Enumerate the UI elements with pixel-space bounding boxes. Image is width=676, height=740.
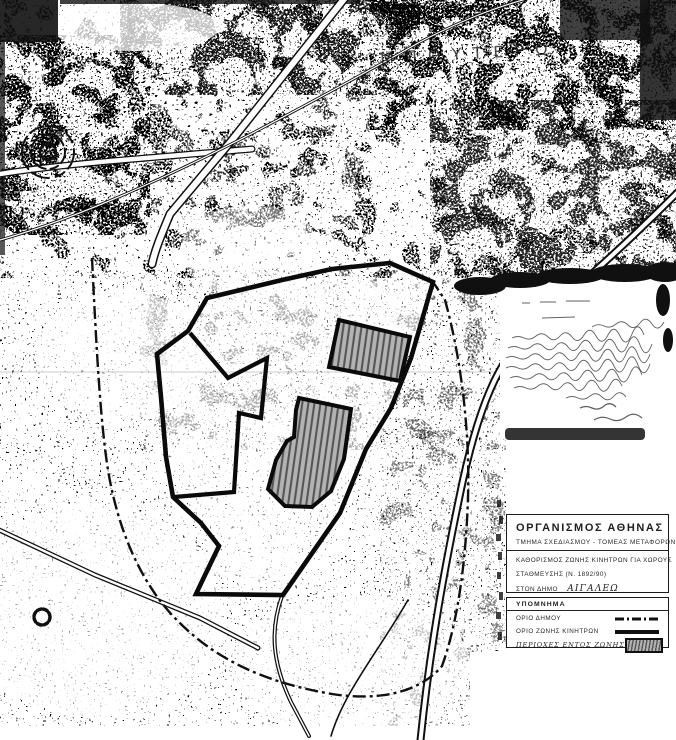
legend-label: ΟΡΙΟ ΖΩΝΗΣ ΚΙΝΗΤΡΩΝ (516, 628, 599, 635)
subject-line-1: ΚΑΘΟΡΙΣΜΟΣ ΖΩΝΗΣ ΚΙΝΗΤΡΩΝ ΓΙΑ ΧΩΡΟΥΣ (516, 557, 659, 564)
legend: ΥΠΟΜΝΗΜΑ ΟΡΙΟ ΔΗΜΟΥ ΟΡΙΟ ΖΩΝΗΣ ΚΙΝΗΤΡΩΝ … (506, 597, 669, 648)
scanned-photomap-page: Μ Π Ο Υ Τ Ε Ρ Ω ΟΡΓΑΝΙΣΜΟΣ ΑΘΗΝΑΣ ΤΜΗΜΑ … (0, 0, 676, 740)
org-section: ΟΡΓΑΝΙΣΜΟΣ ΑΘΗΝΑΣ ΤΜΗΜΑ ΣΧΕΔΙΑΣΜΟΥ - ΤΟΜ… (507, 515, 668, 551)
hatched-area-symbol (625, 638, 663, 653)
subject-line-3-prefix: ΣΤΟΝ ΔΗΜΟ (516, 586, 558, 593)
subject-line-3: ΣΤΟΝ ΔΗΜΟ ΑΙΓΑΛΕΩ (516, 584, 659, 594)
org-title: ΟΡΓΑΝΙΣΜΟΣ ΑΘΗΝΑΣ (516, 522, 659, 534)
title-block: ΟΡΓΑΝΙΣΜΟΣ ΑΘΗΝΑΣ ΤΜΗΜΑ ΣΧΕΔΙΑΣΜΟΥ - ΤΟΜ… (506, 514, 669, 593)
dash-dot-line-symbol (611, 616, 659, 622)
legend-row-municipal-boundary: ΟΡΙΟ ΔΗΜΟΥ (507, 611, 668, 624)
subject-line-2: ΣΤΑΘΜΕΥΣΗΣ (Ν. 1892/90) (516, 571, 659, 578)
legend-label: ΟΡΙΟ ΔΗΜΟΥ (516, 615, 561, 622)
municipality-name: ΑΙΓΑΛΕΩ (567, 584, 619, 594)
dept-subtitle: ΤΜΗΜΑ ΣΧΕΔΙΑΣΜΟΥ - ΤΟΜΕΑΣ ΜΕΤΑΦΟΡΩΝ (516, 539, 659, 546)
legend-header: ΥΠΟΜΝΗΜΑ (507, 598, 668, 611)
paper-margin (506, 440, 676, 514)
legend-label: ΠΕΡΙΟΧΕΣ ΕΝΤΟΣ ΖΩΝΗΣ (516, 641, 625, 649)
legend-row-zone-areas: ΠΕΡΙΟΧΕΣ ΕΝΤΟΣ ΖΩΝΗΣ (507, 637, 668, 650)
subject-section: ΚΑΘΟΡΙΣΜΟΣ ΖΩΝΗΣ ΚΙΝΗΤΡΩΝ ΓΙΑ ΧΩΡΟΥΣ ΣΤΑ… (507, 551, 668, 594)
legend-row-zone-boundary: ΟΡΙΟ ΖΩΝΗΣ ΚΙΝΗΤΡΩΝ (507, 624, 668, 637)
solid-line-symbol (611, 630, 659, 634)
